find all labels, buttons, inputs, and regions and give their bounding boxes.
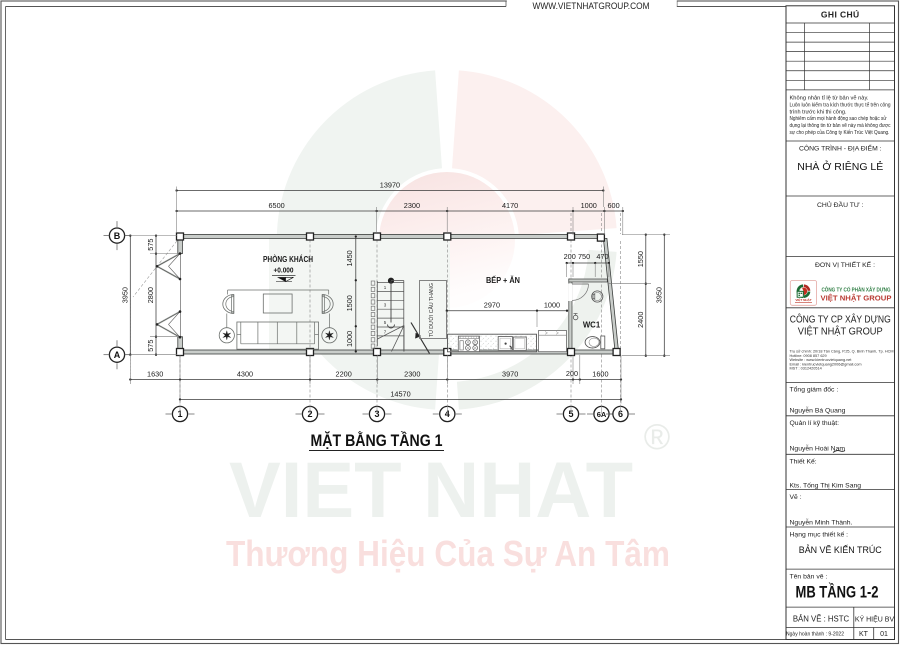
svg-text:MB TẦNG 1-2: MB TẦNG 1-2	[796, 583, 879, 602]
svg-text:A: A	[114, 350, 121, 360]
svg-text:575: 575	[146, 239, 155, 251]
svg-text:®: ®	[644, 416, 671, 457]
svg-text:WWW.VIETNHATGROUP.COM: WWW.VIETNHATGROUP.COM	[533, 1, 650, 11]
svg-text:1000: 1000	[345, 331, 354, 347]
svg-text:VIỆT NHẬT: VIỆT NHẬT	[795, 297, 811, 302]
svg-text:Vẽ :: Vẽ :	[790, 494, 802, 501]
svg-text:GHI CHÚ: GHI CHÚ	[821, 9, 860, 20]
svg-text:PHÒNG KHÁCH: PHÒNG KHÁCH	[263, 253, 313, 264]
svg-text:Quản lí kỹ thuật:: Quản lí kỹ thuật:	[790, 420, 840, 427]
svg-text:CÔNG TRÌNH - ĐỊA ĐIỂM :: CÔNG TRÌNH - ĐỊA ĐIỂM :	[799, 144, 882, 153]
svg-text:KT: KT	[859, 631, 869, 638]
svg-text:BẢN VẼ KIẾN TRÚC: BẢN VẼ KIẾN TRÚC	[799, 544, 882, 556]
svg-text:2400: 2400	[636, 312, 645, 328]
svg-text:2300: 2300	[404, 201, 420, 210]
svg-text:750: 750	[578, 252, 590, 261]
svg-text:BẾP + ĂN: BẾP + ĂN	[486, 275, 520, 285]
svg-text:1450: 1450	[345, 250, 354, 266]
svg-text:2970: 2970	[484, 301, 500, 310]
svg-text:Tổng giám đốc :: Tổng giám đốc :	[790, 385, 839, 394]
svg-text:Hạng mục thiết kế :: Hạng mục thiết kế :	[790, 530, 849, 539]
svg-text:575: 575	[146, 340, 155, 352]
svg-text:3950: 3950	[120, 287, 129, 303]
svg-text:Nghiêm cấm mọi hành động sao c: Nghiêm cấm mọi hành động sao chép hoặc s…	[790, 115, 887, 122]
svg-text:Nguyễn Bá Quang: Nguyễn Bá Quang	[790, 406, 846, 415]
svg-text:Nguyễn Hoài Nam: Nguyễn Hoài Nam	[790, 444, 846, 453]
svg-text:MST : 0312420514: MST : 0312420514	[790, 367, 822, 371]
svg-text:B: B	[114, 231, 121, 241]
svg-text:VIỆT NHẬT GROUP: VIỆT NHẬT GROUP	[798, 325, 883, 338]
svg-text:600: 600	[608, 201, 620, 210]
svg-text:4170: 4170	[502, 201, 518, 210]
svg-text:BẢN VẼ : HSTC: BẢN VẼ : HSTC	[793, 615, 850, 624]
svg-text:VIET NHAT: VIET NHAT	[229, 445, 633, 534]
svg-text:CÔNG TY CP XÂY DỰNG: CÔNG TY CP XÂY DỰNG	[790, 313, 891, 326]
svg-text:VIỆT NHẬT GROUP: VIỆT NHẬT GROUP	[821, 294, 892, 303]
svg-text:200: 200	[566, 369, 578, 378]
svg-text:NHÀ Ở RIÊNG LẺ: NHÀ Ở RIÊNG LẺ	[797, 160, 883, 173]
svg-text:KÝ HIỆU BV: KÝ HIỆU BV	[855, 615, 895, 624]
svg-text:470: 470	[596, 252, 608, 261]
svg-text:200: 200	[564, 252, 576, 261]
svg-text:1600: 1600	[592, 370, 608, 379]
svg-text:+0.000: +0.000	[274, 265, 294, 274]
svg-text:2200: 2200	[336, 370, 352, 379]
svg-text:sự cho phép của Công ty Kiến T: sự cho phép của Công ty Kiến Trúc Việt Q…	[790, 129, 890, 136]
svg-text:ĐƠN VỊ THIẾT KẾ :: ĐƠN VỊ THIẾT KẾ :	[815, 259, 875, 269]
svg-text:01: 01	[880, 631, 888, 638]
svg-text:Thiết Kế:: Thiết Kế:	[790, 457, 817, 466]
svg-text:1550: 1550	[636, 251, 645, 267]
svg-text:Luôn luôn kiểm tra kích thước: Luôn luôn kiểm tra kích thước thực tế tr…	[790, 101, 891, 108]
svg-text:1000: 1000	[544, 301, 560, 310]
svg-text:WC1: WC1	[583, 321, 601, 330]
svg-text:13970: 13970	[380, 181, 400, 190]
svg-text:1000: 1000	[581, 201, 597, 210]
svg-text:Ngày hoàn thành : 9-2022: Ngày hoàn thành : 9-2022	[786, 632, 844, 638]
svg-text:TỦ DƯỚI CẦU THANG: TỦ DƯỚI CẦU THANG	[428, 283, 435, 337]
svg-text:2300: 2300	[404, 370, 420, 379]
svg-text:Nguyễn Minh Thành.: Nguyễn Minh Thành.	[790, 518, 853, 527]
svg-text:1630: 1630	[147, 370, 163, 379]
svg-text:dụng lại thông tin từ bản vẽ n: dụng lại thông tin từ bản vẽ này mà khôn…	[790, 123, 891, 129]
svg-text:Tên bản vẽ :: Tên bản vẽ :	[790, 574, 828, 581]
svg-text:trình trước khi thi công.: trình trước khi thi công.	[790, 109, 847, 115]
svg-text:MẶT BẰNG TẦNG 1: MẶT BẰNG TẦNG 1	[311, 431, 443, 450]
svg-text:Không nhân tỉ lệ từ bản vẽ này: Không nhân tỉ lệ từ bản vẽ này.	[790, 95, 869, 102]
svg-text:Kts. Tống Thị Kim Sang: Kts. Tống Thị Kim Sang	[790, 481, 862, 490]
svg-text:6500: 6500	[268, 201, 284, 210]
svg-text:14570: 14570	[390, 389, 410, 398]
svg-text:3950: 3950	[654, 287, 663, 303]
svg-text:CHỦ ĐẦU TƯ :: CHỦ ĐẦU TƯ :	[817, 199, 864, 209]
svg-text:3970: 3970	[502, 370, 518, 379]
svg-text:4300: 4300	[237, 370, 253, 379]
svg-text:2800: 2800	[146, 287, 155, 303]
svg-text:1500: 1500	[345, 295, 354, 311]
svg-text:CÔNG TY CỔ PHẦN XÂY DỰNG: CÔNG TY CỔ PHẦN XÂY DỰNG	[822, 285, 891, 293]
svg-text:Thương Hiệu Của Sự An Tâm: Thương Hiệu Của Sự An Tâm	[226, 533, 670, 574]
